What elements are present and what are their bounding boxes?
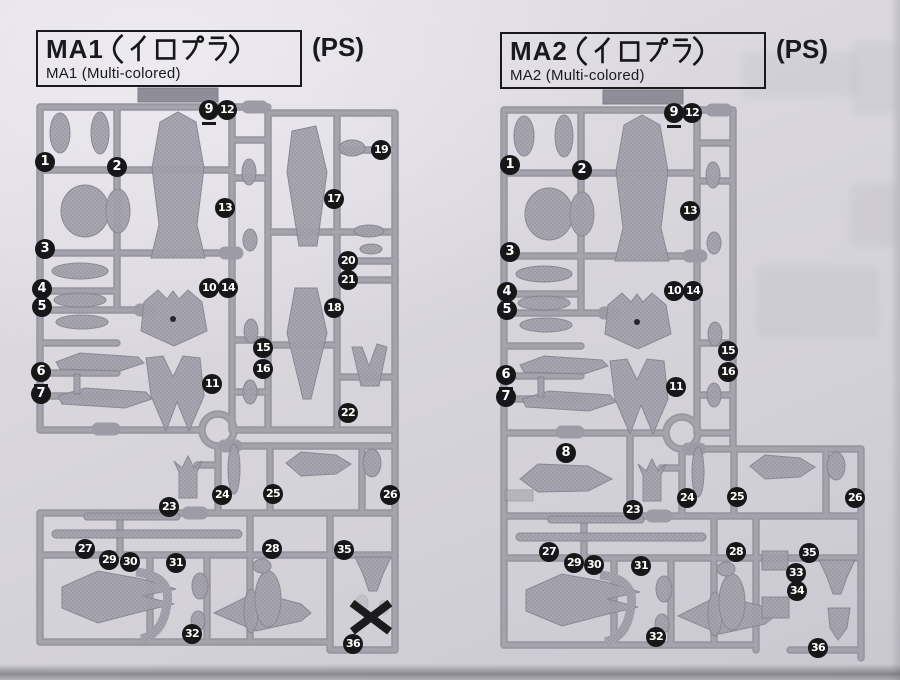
scan-shadow	[0, 664, 900, 680]
katakana-iropura-glyphs	[570, 36, 710, 66]
subtitle-text-ma2: MA2 (Multi-colored)	[510, 67, 756, 84]
title-box-ma1: MA1 MA1 (Multi-colored)	[36, 30, 302, 87]
katakana-iropura-glyphs	[106, 34, 246, 64]
instruction-page: MA1 MA1 (Multi-colored) (PS) MA2 MA2 (Mu…	[0, 0, 900, 680]
ps-label-ma1: (PS)	[312, 30, 364, 64]
title-text-ma1: MA1	[46, 34, 104, 64]
title-box-ma2: MA2 MA2 (Multi-colored)	[500, 32, 766, 89]
title-line: MA2	[510, 36, 756, 66]
panel-title-ma2: MA2 MA2 (Multi-colored) (PS)	[500, 32, 828, 89]
part-pivot-hole	[170, 316, 176, 322]
subtitle-text-ma1: MA1 (Multi-colored)	[46, 65, 292, 82]
runner-diagram-svg	[0, 0, 900, 680]
panel-title-ma1: MA1 MA1 (Multi-colored) (PS)	[36, 30, 364, 87]
title-line: MA1	[46, 34, 292, 64]
ps-label-ma2: (PS)	[776, 32, 828, 66]
scan-edge-shade	[890, 0, 900, 680]
runner-top-tab	[138, 88, 218, 102]
title-text-ma2: MA2	[510, 36, 568, 66]
runner-top-tab	[603, 90, 683, 104]
bleed-through-ghost	[756, 266, 878, 338]
runner-sprue-ma2	[504, 90, 861, 658]
part-pivot-hole	[634, 319, 640, 325]
runner-sprue-ma1	[40, 88, 395, 650]
